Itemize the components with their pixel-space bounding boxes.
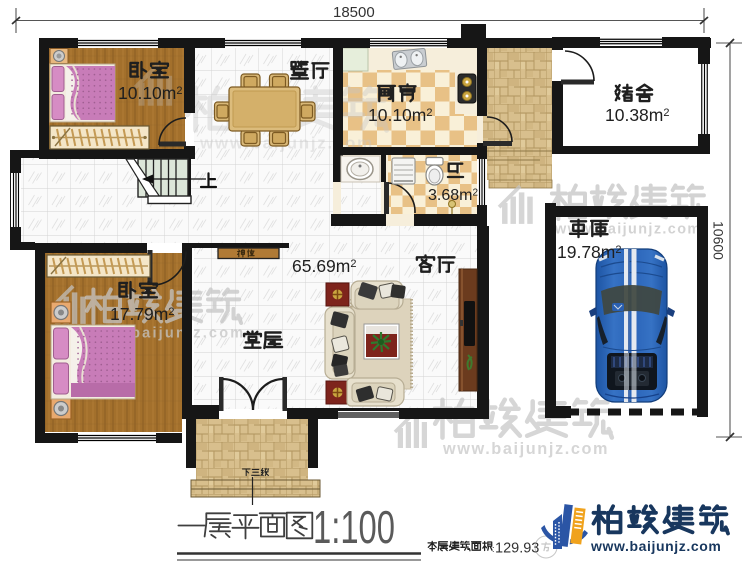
svg-text:www.baijunjz.com: www.baijunjz.com	[442, 440, 609, 458]
svg-text:www.baijunjz.com: www.baijunjz.com	[590, 538, 721, 554]
svg-text:3.68m2: 3.68m2	[428, 187, 478, 204]
svg-text:10600: 10600	[711, 221, 727, 260]
svg-text:19.78m2: 19.78m2	[557, 242, 622, 262]
svg-text:18500: 18500	[333, 4, 375, 21]
svg-text:10.10m2: 10.10m2	[118, 83, 183, 103]
svg-text:1:100: 1:100	[313, 501, 395, 553]
svg-text:65.69m2: 65.69m2	[292, 256, 357, 276]
svg-text:17.79m2: 17.79m2	[110, 304, 175, 324]
svg-text:10.10m2: 10.10m2	[368, 105, 433, 125]
svg-text:10.38m2: 10.38m2	[605, 105, 670, 125]
svg-text:129.93: 129.93	[495, 541, 539, 557]
